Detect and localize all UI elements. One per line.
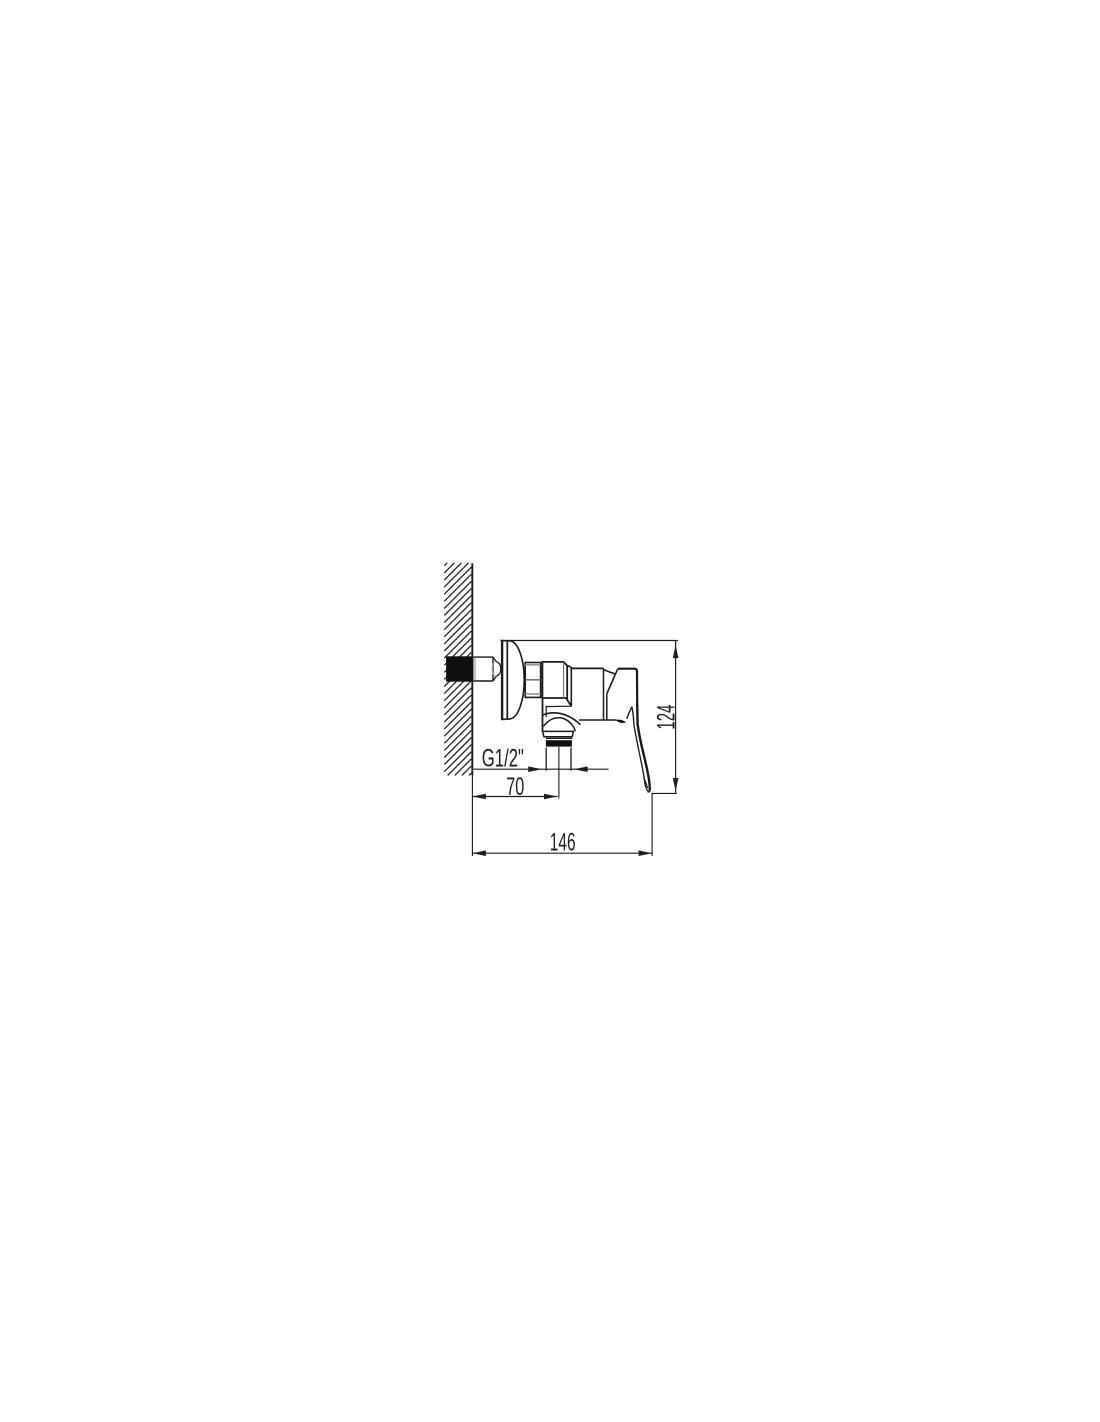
svg-text:124: 124 — [652, 705, 680, 730]
svg-text:70: 70 — [506, 773, 524, 801]
svg-text:146: 146 — [550, 829, 576, 857]
svg-text:G1/2": G1/2" — [482, 745, 524, 773]
